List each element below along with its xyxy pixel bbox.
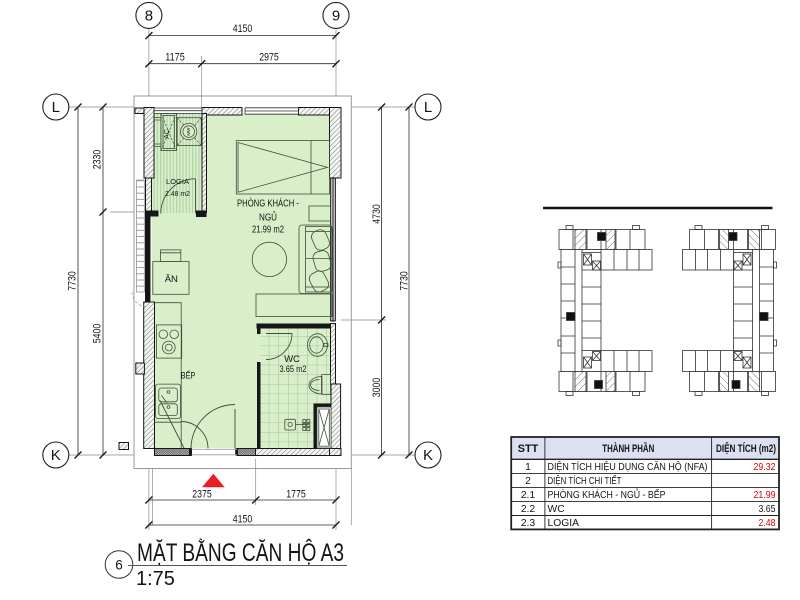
svg-text:L: L xyxy=(424,99,432,116)
svg-text:MẶT BẰNG CĂN HỘ A3: MẶT BẰNG CĂN HỘ A3 xyxy=(137,538,344,567)
svg-text:K: K xyxy=(423,447,433,464)
svg-text:2.48 m2: 2.48 m2 xyxy=(165,189,190,198)
svg-text:3000: 3000 xyxy=(371,378,383,398)
svg-text:L: L xyxy=(52,99,60,116)
svg-text:4150: 4150 xyxy=(233,514,253,526)
svg-text:7730: 7730 xyxy=(67,271,79,291)
svg-text:8: 8 xyxy=(145,8,153,25)
svg-text:NGỦ: NGỦ xyxy=(259,211,277,224)
svg-text:3.65 m2: 3.65 m2 xyxy=(280,364,307,374)
svg-text:MW: MW xyxy=(186,127,191,136)
svg-text:LOGIA: LOGIA xyxy=(548,518,580,529)
svg-text:2375: 2375 xyxy=(192,489,212,501)
svg-text:2.1: 2.1 xyxy=(521,490,536,501)
svg-text:21.99 m2: 21.99 m2 xyxy=(252,225,284,236)
svg-text:2975: 2975 xyxy=(259,51,279,63)
svg-text:2330: 2330 xyxy=(92,150,104,170)
svg-text:29.32: 29.32 xyxy=(754,462,776,473)
svg-text:K: K xyxy=(51,447,61,464)
svg-text:2: 2 xyxy=(525,476,531,487)
svg-text:DIỆN TÍCH CHI TIẾT: DIỆN TÍCH CHI TIẾT xyxy=(548,474,623,487)
svg-text:1775: 1775 xyxy=(286,489,306,501)
svg-text:AC: AC xyxy=(164,129,171,139)
svg-text:STT: STT xyxy=(518,443,539,455)
svg-text:7730: 7730 xyxy=(399,271,411,291)
svg-text:DIỆN TÍCH (m2): DIỆN TÍCH (m2) xyxy=(716,442,776,455)
svg-text:2.2: 2.2 xyxy=(521,504,536,515)
svg-text:9: 9 xyxy=(332,8,340,25)
svg-text:PHÒNG KHÁCH - NGỦ - BẾP: PHÒNG KHÁCH - NGỦ - BẾP xyxy=(548,488,666,501)
svg-text:1175: 1175 xyxy=(165,51,185,63)
svg-text:PHÒNG KHÁCH -: PHÒNG KHÁCH - xyxy=(237,197,299,210)
svg-text:2.3: 2.3 xyxy=(521,518,536,529)
svg-text:1:75: 1:75 xyxy=(136,568,175,590)
svg-text:3.65: 3.65 xyxy=(759,504,776,515)
svg-text:2.48: 2.48 xyxy=(759,518,776,529)
svg-text:21.99: 21.99 xyxy=(754,490,776,501)
svg-text:4150: 4150 xyxy=(233,23,253,35)
svg-text:WC: WC xyxy=(548,504,566,515)
svg-text:LOGIA: LOGIA xyxy=(166,177,189,186)
svg-text:BẾP: BẾP xyxy=(181,371,196,381)
svg-text:THÀNH PHẦN: THÀNH PHẦN xyxy=(602,442,654,455)
svg-text:6: 6 xyxy=(115,558,123,573)
svg-text:5400: 5400 xyxy=(92,324,104,344)
svg-text:1: 1 xyxy=(525,462,531,473)
svg-text:DIỆN TÍCH HIỆU DỤNG CĂN HỘ (NF: DIỆN TÍCH HIỆU DỤNG CĂN HỘ (NFA) xyxy=(548,460,708,473)
svg-text:4730: 4730 xyxy=(371,204,383,224)
svg-text:ĂN: ĂN xyxy=(165,274,178,285)
